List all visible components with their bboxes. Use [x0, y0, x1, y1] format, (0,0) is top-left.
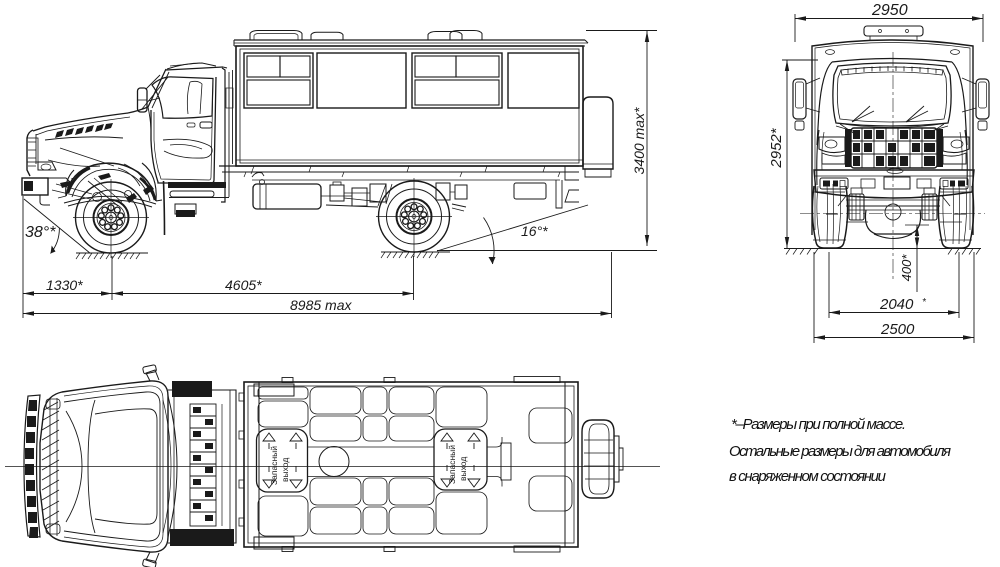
svg-text:2040: 2040 — [879, 296, 914, 313]
svg-text:в снаряженном состоянии: в снаряженном состоянии — [729, 468, 887, 485]
svg-text:8985 max: 8985 max — [290, 297, 352, 313]
svg-text:Запасный: Запасный — [269, 446, 279, 485]
svg-text:2952*: 2952* — [768, 127, 785, 168]
svg-text:2500: 2500 — [880, 321, 915, 338]
svg-text:1330*: 1330* — [46, 277, 83, 293]
svg-text:3400 max*: 3400 max* — [631, 107, 647, 174]
svg-text:Остальные размеры для автомоби: Остальные размеры для автомобиля — [729, 443, 951, 460]
svg-text:Запасный: Запасный — [447, 445, 457, 484]
svg-text:*–Размеры при полной массе.: *–Размеры при полной массе. — [731, 416, 906, 433]
svg-text:4605*: 4605* — [225, 277, 262, 293]
svg-text:2950: 2950 — [871, 2, 908, 19]
svg-text:выход: выход — [458, 457, 468, 481]
svg-text:16°*: 16°* — [521, 223, 548, 239]
svg-text:38°*: 38°* — [25, 224, 56, 241]
svg-text:выход: выход — [280, 458, 290, 482]
svg-text:400*: 400* — [899, 254, 914, 282]
